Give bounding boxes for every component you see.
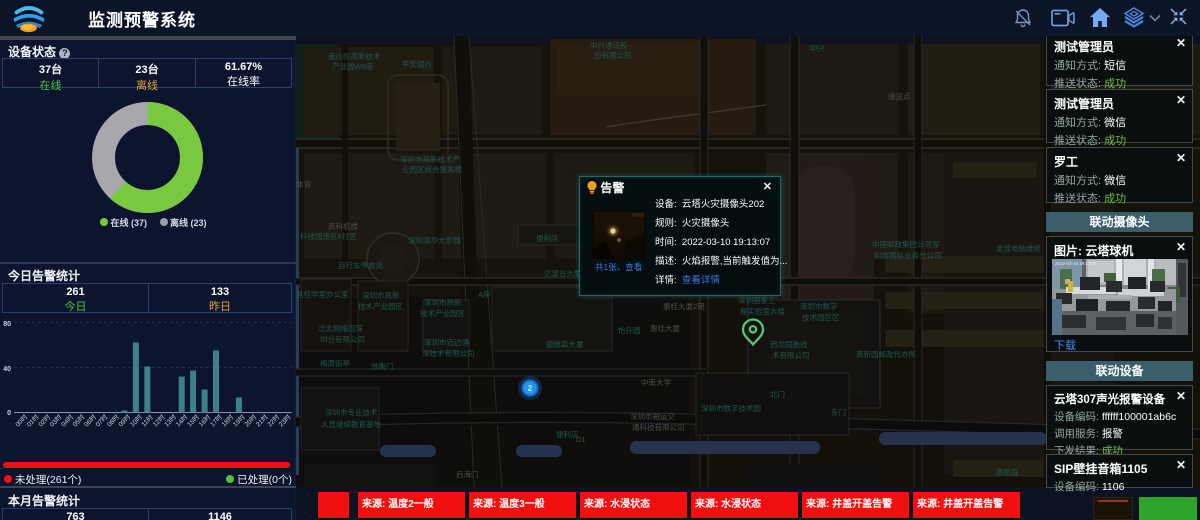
svg-text:A座: A座 bbox=[478, 289, 491, 299]
svg-text:深圳市高新: 深圳市高新 bbox=[424, 297, 462, 307]
svg-text:泛太网络回深: 泛太网络回深 bbox=[318, 323, 363, 333]
svg-text:深技术有限公司: 深技术有限公司 bbox=[422, 348, 475, 358]
svg-text:0: 0 bbox=[7, 410, 11, 417]
svg-text:深圳市高新技术产: 深圳市高新技术产 bbox=[400, 154, 460, 164]
svg-text:深圳国家工: 深圳国家工 bbox=[738, 295, 776, 305]
svg-text:张衡门: 张衡门 bbox=[371, 361, 394, 371]
svg-text:平安银行: 平安银行 bbox=[402, 59, 432, 69]
svg-text:自行车停放处: 自行车停放处 bbox=[338, 260, 383, 270]
svg-text:中兴通讯股: 中兴通讯股 bbox=[590, 40, 628, 50]
svg-text:程实验室大楼: 程实验室大楼 bbox=[740, 306, 785, 316]
svg-text:深圳市数字技术园: 深圳市数字技术园 bbox=[701, 403, 761, 413]
svg-text:D1: D1 bbox=[576, 435, 586, 444]
svg-text:圳分有限公司: 圳分有限公司 bbox=[320, 334, 365, 344]
svg-text:中南大学: 中南大学 bbox=[641, 377, 671, 387]
svg-text:惠桂大厦2期: 惠桂大厦2期 bbox=[663, 301, 705, 311]
svg-text:怡升园: 怡升园 bbox=[618, 325, 641, 335]
svg-text:深圳市专业技术: 深圳市专业技术 bbox=[325, 407, 378, 417]
svg-text:便利店: 便利店 bbox=[536, 233, 559, 243]
svg-text:通科技有限公司: 通科技有限公司 bbox=[632, 422, 685, 432]
svg-text:业园区综合服务楼: 业园区综合服务楼 bbox=[402, 164, 462, 174]
svg-text:接送点: 接送点 bbox=[888, 91, 911, 101]
svg-text:产业园W8座: 产业园W8座 bbox=[332, 61, 374, 71]
svg-text:份有限公司: 份有限公司 bbox=[594, 50, 632, 60]
svg-text:友佳电脑维修: 友佳电脑维修 bbox=[996, 243, 1041, 253]
svg-text:深圳市数字: 深圳市数字 bbox=[800, 301, 838, 311]
svg-text:高科机楼: 高科机楼 bbox=[328, 221, 358, 231]
svg-text:北门: 北门 bbox=[770, 390, 785, 399]
svg-text:西龙同胞技: 西龙同胞技 bbox=[770, 339, 808, 349]
svg-text:科技园南区8村区: 科技园南区8村区 bbox=[300, 231, 357, 241]
svg-text:技术园区区: 技术园区区 bbox=[802, 312, 840, 322]
svg-text:技术产业园区: 技术产业园区 bbox=[420, 308, 465, 318]
svg-text:高新园邮政代办所: 高新园邮政代办所 bbox=[856, 349, 916, 359]
svg-text:圳市国际业务分公司: 圳市国际业务分公司 bbox=[874, 250, 942, 260]
svg-text:00时: 00时 bbox=[13, 412, 29, 428]
svg-text:80: 80 bbox=[3, 321, 11, 328]
svg-text:德维森大厦: 德维森大厦 bbox=[546, 339, 584, 349]
svg-text:体育: 体育 bbox=[296, 179, 311, 189]
svg-text:深圳市高新: 深圳市高新 bbox=[362, 290, 400, 300]
svg-text:深圳市融运交: 深圳市融运交 bbox=[630, 411, 675, 421]
svg-text:中兴: 中兴 bbox=[810, 43, 825, 53]
svg-text:达望谷大厦: 达望谷大厦 bbox=[544, 268, 582, 278]
svg-text:40: 40 bbox=[3, 366, 11, 373]
svg-text:中国邮政集团公司深: 中国邮政集团公司深 bbox=[872, 239, 940, 249]
svg-text:梅周街亭: 梅周街亭 bbox=[320, 358, 350, 368]
svg-text:深圳清华大学园: 深圳清华大学园 bbox=[408, 235, 461, 245]
svg-text:高新庭: 高新庭 bbox=[996, 467, 1019, 477]
svg-text:术有限公司: 术有限公司 bbox=[772, 350, 810, 360]
svg-text:东门: 东门 bbox=[831, 407, 846, 417]
svg-text:惠桂大厦: 惠桂大厦 bbox=[650, 323, 680, 333]
svg-text:人员继续教育基地: 人员继续教育基地 bbox=[321, 419, 381, 429]
svg-text:昌桂学室办公室: 昌桂学室办公室 bbox=[296, 289, 349, 299]
svg-text:2022-03-10 19:13:07: 2022-03-10 19:13:07 bbox=[1055, 261, 1097, 266]
svg-text:技术产业园区: 技术产业园区 bbox=[358, 301, 403, 311]
svg-text:后海门: 后海门 bbox=[456, 469, 479, 479]
svg-text:2: 2 bbox=[528, 384, 533, 393]
svg-text:深圳市迈边通: 深圳市迈边通 bbox=[424, 337, 469, 347]
svg-text:南山区高新技术: 南山区高新技术 bbox=[328, 51, 381, 61]
